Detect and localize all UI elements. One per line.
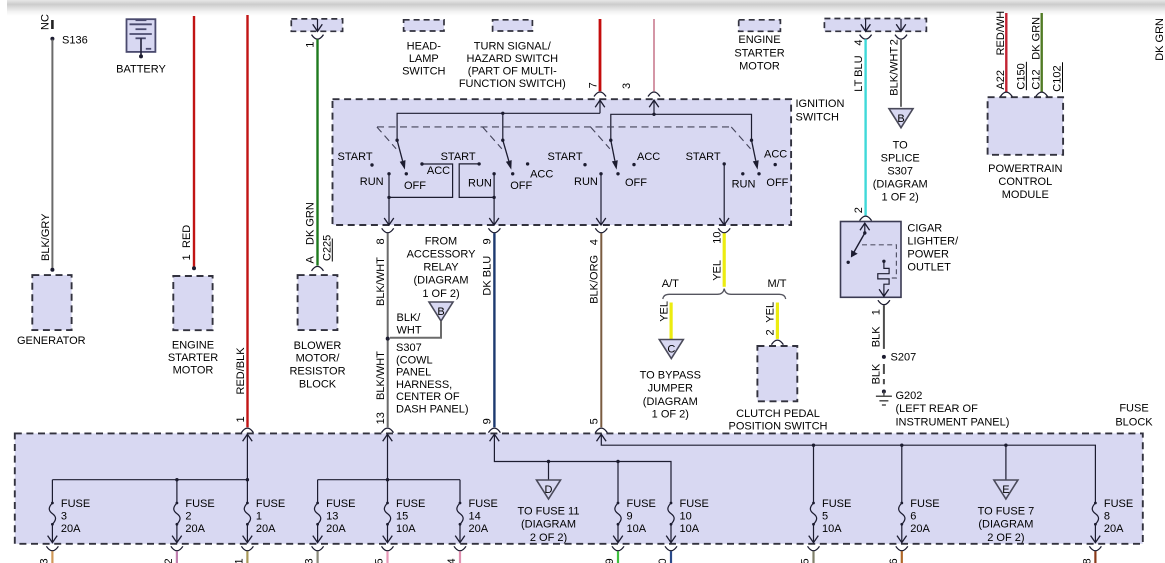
svg-text:DK BLU: DK BLU — [482, 256, 494, 296]
svg-text:BATTERY: BATTERY — [116, 63, 166, 75]
svg-text:10A: 10A — [822, 523, 842, 535]
svg-text:1 OF 2): 1 OF 2) — [422, 288, 459, 300]
svg-text:IGNITION: IGNITION — [796, 98, 845, 110]
svg-text:10A: 10A — [680, 523, 700, 535]
svg-text:HEAD-: HEAD- — [407, 40, 442, 52]
svg-text:20A: 20A — [910, 523, 930, 535]
svg-text:A22: A22 — [995, 70, 1007, 90]
svg-text:5: 5 — [800, 558, 812, 563]
svg-text:FUSE: FUSE — [256, 498, 285, 510]
svg-text:(DIAGRAM: (DIAGRAM — [978, 519, 1033, 531]
svg-text:BLK: BLK — [871, 326, 883, 347]
svg-text:10A: 10A — [396, 523, 416, 535]
svg-text:10A: 10A — [627, 523, 647, 535]
svg-text:C12: C12 — [1031, 69, 1043, 89]
svg-text:TO FUSE 7: TO FUSE 7 — [978, 505, 1035, 517]
svg-text:OFF: OFF — [625, 177, 647, 189]
svg-text:INSTRUMENT PANEL): INSTRUMENT PANEL) — [896, 416, 1010, 428]
svg-text:1: 1 — [234, 558, 246, 563]
svg-text:3: 3 — [304, 558, 316, 563]
svg-text:13: 13 — [375, 412, 387, 424]
svg-text:2 OF 2): 2 OF 2) — [530, 532, 567, 544]
svg-text:BLOCK: BLOCK — [299, 378, 337, 390]
svg-text:9: 9 — [482, 418, 494, 424]
svg-text:FROM: FROM — [425, 235, 457, 247]
svg-text:3: 3 — [621, 83, 633, 89]
svg-text:1: 1 — [305, 42, 317, 48]
svg-text:MOTOR: MOTOR — [173, 365, 214, 377]
svg-text:C102: C102 — [1051, 65, 1063, 91]
svg-text:5: 5 — [822, 510, 828, 522]
svg-text:FUSE: FUSE — [61, 498, 90, 510]
svg-text:YEL: YEL — [658, 301, 670, 322]
svg-text:DK GRN: DK GRN — [1154, 18, 1165, 61]
svg-text:SWITCH: SWITCH — [402, 66, 445, 78]
svg-text:FUSE: FUSE — [1119, 403, 1148, 415]
svg-text:RELAY: RELAY — [423, 262, 459, 274]
svg-text:6: 6 — [888, 558, 900, 563]
svg-text:13: 13 — [326, 510, 338, 522]
svg-text:5: 5 — [589, 418, 601, 424]
svg-text:ENGINE: ENGINE — [738, 34, 780, 46]
svg-text:4: 4 — [853, 39, 865, 45]
svg-text:START: START — [338, 151, 373, 163]
svg-text:(COWL: (COWL — [396, 354, 433, 366]
svg-text:BLK/: BLK/ — [397, 312, 422, 324]
svg-text:FUSE: FUSE — [469, 498, 498, 510]
svg-text:FUSE: FUSE — [185, 498, 214, 510]
svg-text:POSITION SWITCH: POSITION SWITCH — [729, 421, 828, 433]
svg-text:FUSE: FUSE — [910, 498, 939, 510]
svg-text:2: 2 — [888, 39, 900, 45]
svg-text:LT BLU: LT BLU — [853, 55, 865, 91]
svg-text:BLOWER: BLOWER — [294, 340, 342, 352]
svg-text:YEL: YEL — [765, 302, 777, 323]
svg-text:HAZARD SWITCH: HAZARD SWITCH — [466, 53, 558, 65]
svg-text:LAMP: LAMP — [409, 53, 439, 65]
svg-text:BLK/WHT: BLK/WHT — [375, 257, 387, 306]
svg-text:BLK/WHT: BLK/WHT — [375, 351, 387, 400]
svg-text:RUN: RUN — [468, 177, 492, 189]
svg-text:14: 14 — [469, 510, 481, 522]
svg-text:10: 10 — [712, 231, 724, 243]
svg-text:POWERTRAIN: POWERTRAIN — [988, 163, 1062, 175]
svg-text:BLK/GRY: BLK/GRY — [40, 213, 52, 261]
svg-text:D: D — [545, 484, 553, 496]
svg-text:ENGINE: ENGINE — [172, 340, 214, 352]
svg-text:8: 8 — [1104, 510, 1110, 522]
svg-text:7: 7 — [587, 82, 599, 88]
svg-text:STARTER: STARTER — [168, 352, 218, 364]
svg-text:STARTER: STARTER — [734, 47, 784, 59]
svg-text:BLK/ORG: BLK/ORG — [589, 255, 601, 304]
svg-text:POWER: POWER — [907, 249, 949, 261]
svg-text:GENERATOR: GENERATOR — [17, 335, 86, 347]
svg-text:MOTOR/: MOTOR/ — [296, 353, 341, 365]
svg-text:10: 10 — [680, 510, 692, 522]
svg-text:M/T: M/T — [768, 278, 787, 290]
svg-text:9: 9 — [604, 558, 616, 563]
svg-text:OFF: OFF — [510, 180, 532, 192]
svg-text:DASH PANEL): DASH PANEL) — [396, 404, 469, 416]
svg-text:START: START — [686, 151, 721, 163]
svg-text:5: 5 — [374, 558, 386, 563]
svg-text:A/T: A/T — [662, 278, 679, 290]
svg-text:1: 1 — [871, 309, 883, 315]
svg-text:(DIAGRAM: (DIAGRAM — [414, 275, 469, 287]
svg-text:BLK/WHT: BLK/WHT — [888, 47, 900, 96]
svg-text:20A: 20A — [185, 523, 205, 535]
svg-text:20A: 20A — [469, 523, 489, 535]
svg-text:2 OF 2): 2 OF 2) — [987, 532, 1024, 544]
svg-text:0: 0 — [657, 558, 669, 563]
svg-text:NC: NC — [40, 14, 52, 30]
svg-text:A: A — [305, 256, 317, 264]
svg-text:20A: 20A — [326, 523, 346, 535]
svg-text:2: 2 — [765, 329, 777, 335]
svg-text:RED/BLK: RED/BLK — [235, 347, 247, 395]
svg-text:TURN SIGNAL/: TURN SIGNAL/ — [474, 40, 552, 52]
svg-text:MODULE: MODULE — [1002, 189, 1049, 201]
svg-text:CENTER OF: CENTER OF — [396, 391, 460, 403]
svg-text:CONTROL: CONTROL — [998, 176, 1052, 188]
svg-text:S307: S307 — [396, 342, 422, 354]
svg-text:ACCESSORY: ACCESSORY — [407, 249, 477, 261]
svg-text:ACC: ACC — [637, 151, 660, 163]
svg-text:(PART OF MULTI-: (PART OF MULTI- — [468, 66, 557, 78]
svg-text:FUSE: FUSE — [326, 498, 355, 510]
svg-text:1 OF 2): 1 OF 2) — [652, 409, 689, 421]
svg-text:S207: S207 — [891, 352, 917, 364]
svg-text:C225: C225 — [322, 235, 334, 261]
svg-text:2: 2 — [185, 510, 191, 522]
svg-text:START: START — [441, 151, 476, 163]
svg-text:4: 4 — [589, 239, 601, 245]
svg-text:8: 8 — [375, 238, 387, 244]
svg-text:1: 1 — [235, 416, 247, 422]
svg-text:3: 3 — [61, 510, 67, 522]
svg-text:20A: 20A — [61, 523, 81, 535]
svg-text:TO: TO — [893, 140, 909, 152]
svg-text:YEL: YEL — [712, 260, 724, 281]
svg-text:FUSE: FUSE — [627, 498, 656, 510]
svg-text:E: E — [1002, 484, 1009, 496]
svg-text:FUSE: FUSE — [1104, 498, 1133, 510]
svg-text:1 OF 2): 1 OF 2) — [882, 192, 919, 204]
svg-text:4: 4 — [446, 558, 458, 563]
svg-text:B: B — [897, 113, 904, 125]
svg-text:S307: S307 — [887, 166, 913, 178]
svg-text:B: B — [437, 306, 444, 318]
svg-text:FUSE: FUSE — [396, 498, 425, 510]
svg-text:DK GRN: DK GRN — [1031, 17, 1043, 60]
svg-text:SPLICE: SPLICE — [881, 153, 920, 165]
svg-text:BLK: BLK — [871, 363, 883, 384]
svg-text:1: 1 — [181, 254, 193, 260]
svg-text:RESISTOR: RESISTOR — [289, 366, 345, 378]
svg-text:RUN: RUN — [732, 179, 756, 191]
svg-text:RED: RED — [181, 225, 193, 248]
svg-text:2: 2 — [163, 558, 175, 563]
svg-text:ACC: ACC — [764, 149, 787, 161]
svg-text:START: START — [548, 151, 583, 163]
svg-text:CLUTCH PEDAL: CLUTCH PEDAL — [736, 408, 820, 420]
svg-text:OFF: OFF — [404, 180, 426, 192]
svg-text:SWITCH: SWITCH — [796, 112, 839, 124]
svg-text:FUSE: FUSE — [822, 498, 851, 510]
svg-text:MOTOR: MOTOR — [739, 61, 780, 73]
svg-text:(DIAGRAM: (DIAGRAM — [873, 179, 928, 191]
svg-text:9: 9 — [482, 238, 494, 244]
svg-text:PANEL: PANEL — [396, 367, 431, 379]
svg-text:OFF: OFF — [766, 177, 788, 189]
svg-text:20A: 20A — [1104, 523, 1124, 535]
svg-text:(DIAGRAM: (DIAGRAM — [521, 519, 576, 531]
svg-text:CIGAR: CIGAR — [907, 223, 942, 235]
svg-text:RUN: RUN — [360, 176, 384, 188]
svg-text:DK GRN: DK GRN — [305, 202, 317, 245]
svg-text:RED/WH: RED/WH — [995, 11, 1007, 56]
svg-text:9: 9 — [627, 510, 633, 522]
svg-text:3: 3 — [39, 558, 51, 563]
svg-text:FUNCTION SWITCH): FUNCTION SWITCH) — [459, 78, 566, 90]
svg-text:8: 8 — [1082, 558, 1094, 563]
svg-text:(DIAGRAM: (DIAGRAM — [643, 396, 698, 408]
svg-text:2: 2 — [853, 207, 865, 213]
svg-text:HARNESS,: HARNESS, — [396, 379, 452, 391]
svg-text:ACC: ACC — [427, 165, 450, 177]
svg-text:JUMPER: JUMPER — [648, 383, 693, 395]
svg-text:C150: C150 — [1015, 63, 1027, 89]
svg-text:15: 15 — [396, 510, 408, 522]
svg-text:S136: S136 — [62, 34, 88, 46]
svg-text:LIGHTER/: LIGHTER/ — [907, 236, 959, 248]
svg-text:C: C — [667, 344, 675, 356]
svg-text:RUN: RUN — [574, 176, 598, 188]
svg-text:TO BYPASS: TO BYPASS — [640, 370, 701, 382]
svg-text:TO FUSE 11: TO FUSE 11 — [518, 505, 580, 517]
svg-text:1: 1 — [256, 510, 262, 522]
svg-text:G202: G202 — [896, 390, 923, 402]
svg-text:20A: 20A — [256, 523, 276, 535]
svg-text:OUTLET: OUTLET — [907, 262, 951, 274]
svg-text:ACC: ACC — [530, 169, 553, 181]
svg-text:WHT: WHT — [397, 325, 422, 337]
svg-text:6: 6 — [910, 510, 916, 522]
svg-text:FUSE: FUSE — [680, 498, 709, 510]
svg-text:BLOCK: BLOCK — [1115, 416, 1153, 428]
svg-text:(LEFT REAR OF: (LEFT REAR OF — [896, 403, 979, 415]
